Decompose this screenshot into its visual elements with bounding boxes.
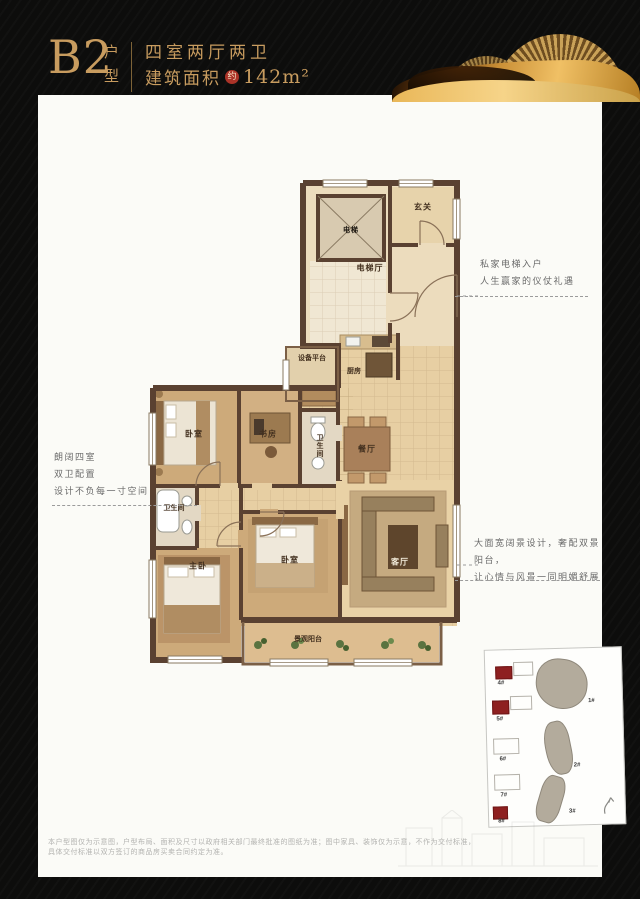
room-label-bedroom-2: 卧室 — [281, 555, 299, 566]
annotation-right-top-leader — [455, 296, 588, 297]
annotation-line: 让心情与风景一同明媚舒展 — [474, 569, 600, 586]
room-label-dining: 餐厅 — [358, 444, 376, 455]
siteplan-building-outline — [510, 696, 532, 711]
annotation-line: 双卫配置 — [54, 466, 149, 483]
gold-silk-decoration — [392, 26, 640, 102]
annotation-line: 朗阔四室 — [54, 449, 149, 466]
siteplan-building-label: 4# — [498, 680, 505, 686]
disclaimer: 本户型图仅为示意图，户型布局、面积及尺寸以政府相关部门最终批准的图纸为准；图中家… — [48, 838, 596, 858]
siteplan-building-outline — [493, 738, 519, 755]
room-label-equipment-deck: 设备平台 — [298, 353, 326, 363]
siteplan-building-label: 7# — [500, 792, 507, 798]
siteplan-building-gray — [540, 719, 576, 777]
disclaimer-line-2: 具体交付标准以双方签订的商品房买卖合同约定为准。 — [48, 848, 596, 858]
room-label-view-balcony: 景观阳台 — [294, 634, 322, 644]
siteplan-building-label: 2# — [574, 762, 581, 768]
annotation-right-bottom: 大面宽阔景设计，奢配双景阳台， 让心情与风景一同明媚舒展 — [474, 535, 600, 586]
siteplan-building-label: 1# — [588, 698, 595, 704]
room-label-living-room: 客厅 — [391, 557, 409, 568]
header-divider — [131, 42, 132, 92]
area-prefix: 建筑面积 — [145, 64, 221, 89]
siteplan-building-highlight — [495, 666, 512, 679]
siteplan-building-label: 5# — [496, 716, 503, 722]
siteplan-building-label: 6# — [499, 756, 506, 762]
poster: B2 户 型 四室两厅两卫 建筑面积 约 142m² — [0, 0, 640, 899]
approx-seal: 约 — [225, 70, 239, 84]
annotation-line: 私家电梯入户 — [480, 256, 575, 273]
room-label-master-bedroom: 主卧 — [189, 561, 207, 572]
room-label-entry: 玄关 — [414, 202, 432, 213]
north-arrow-icon — [599, 793, 622, 818]
siteplan-building-outline — [513, 662, 533, 677]
floorplan-drawing — [140, 175, 480, 675]
unit-type-label: 户 型 — [104, 40, 120, 88]
room-label-elevator: 电梯 — [343, 225, 359, 235]
annotation-left-leader — [52, 505, 197, 506]
room-label-kitchen: 厨房 — [347, 366, 361, 376]
annotation-line: 设计不负每一寸空间 — [54, 483, 149, 500]
siteplan-building-highlight — [492, 700, 509, 714]
annotation-right-top: 私家电梯入户 人生赢家的仪仗礼遇 — [480, 256, 575, 290]
room-label-elevator-hall: 电梯厅 — [357, 263, 384, 274]
unit-type-char-1: 户 — [104, 40, 120, 64]
area-row: 建筑面积 约 142m² — [145, 64, 310, 89]
annotation-right-bottom-leader — [455, 580, 600, 581]
siteplan-building-gray — [533, 656, 590, 712]
room-label-bedroom-1: 卧室 — [185, 429, 203, 440]
annotation-line: 大面宽阔景设计，奢配双景阳台， — [474, 535, 600, 569]
annotation-left: 朗阔四室 双卫配置 设计不负每一寸空间 — [54, 449, 149, 500]
annotation-line: 人生赢家的仪仗礼遇 — [480, 273, 575, 290]
area-value: 142m² — [243, 66, 310, 88]
room-label-bath-1: 卫生间 — [314, 434, 324, 458]
unit-spec: 四室两厅两卫 — [145, 38, 271, 63]
site-plan: 1# 2# 3# 4# 5# 6# 7# 8# — [484, 646, 627, 828]
unit-type-char-2: 型 — [104, 64, 120, 88]
disclaimer-line-1: 本户型图仅为示意图，户型布局、面积及尺寸以政府相关部门最终批准的图纸为准；图中家… — [48, 838, 596, 848]
siteplan-building-outline — [494, 774, 520, 791]
room-label-study: 书房 — [259, 429, 277, 440]
